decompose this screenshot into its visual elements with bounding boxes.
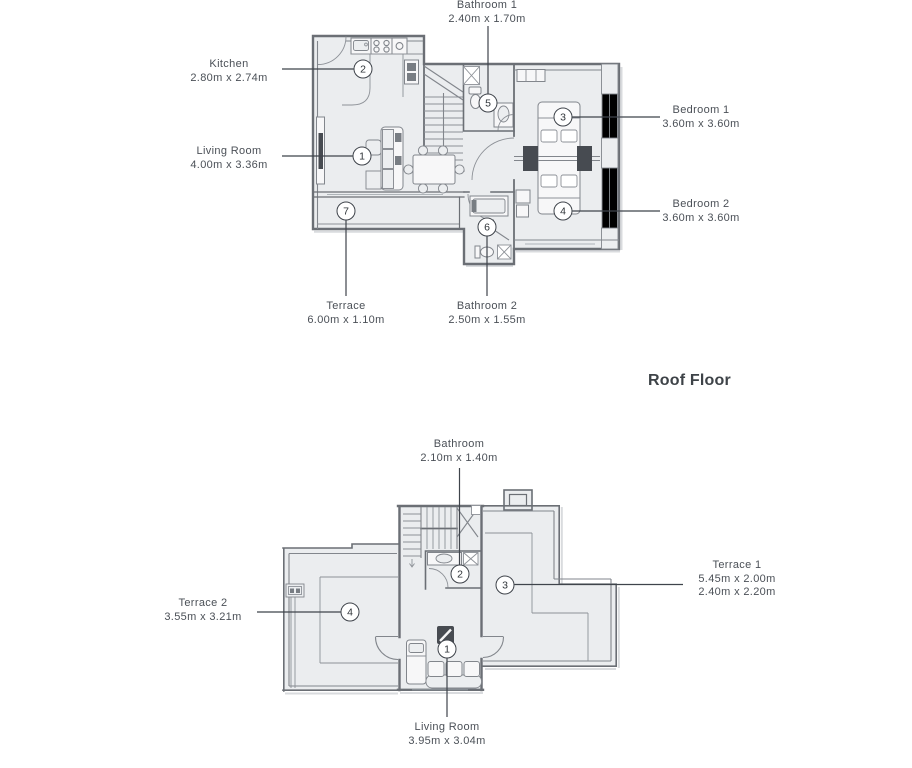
- label-terrace2-title: Terrace 2: [164, 597, 241, 611]
- label-terrace1-dims: 5.45m x 2.00m: [698, 573, 775, 587]
- sink: [436, 554, 452, 563]
- wall-poche: [523, 146, 538, 171]
- dining-chair: [418, 184, 427, 193]
- wall-poche: [577, 146, 592, 171]
- dining-chair: [404, 165, 413, 174]
- chimney: [504, 490, 532, 510]
- dining-chair: [438, 184, 447, 193]
- toilet: [469, 87, 481, 94]
- marker-roof-bathroom: 2: [451, 565, 470, 584]
- label-bedroom1-title: Bedroom 1: [662, 104, 739, 118]
- marker-bedroom1: 3: [554, 108, 573, 127]
- label-terrace-title: Terrace: [307, 300, 384, 314]
- label-kitchen-title: Kitchen: [190, 58, 267, 72]
- label-terrace2: Terrace 2 3.55m x 3.21m: [164, 597, 241, 624]
- label-bedroom2-title: Bedroom 2: [662, 198, 739, 212]
- oven: [392, 38, 407, 54]
- label-bedroom1: Bedroom 1 3.60m x 3.60m: [662, 104, 739, 131]
- sofa-cushion: [446, 662, 462, 677]
- section-title-roof-floor: Roof Floor: [648, 372, 731, 390]
- stove: [371, 38, 392, 54]
- sink: [498, 106, 509, 122]
- label-roof-bathroom-dims: 2.10m x 1.40m: [420, 452, 497, 466]
- label-living1-title: Living Room: [190, 145, 267, 159]
- label-terrace1-dims2: 2.40m x 2.20m: [698, 586, 775, 600]
- marker-kitchen: 2: [354, 60, 373, 79]
- pillow: [561, 175, 577, 187]
- dining-chair: [455, 165, 464, 174]
- label-terrace1: Terrace 1 5.45m x 2.00m 2.40m x 2.20m: [698, 559, 775, 600]
- label-terrace2-dims: 3.55m x 3.21m: [164, 611, 241, 625]
- dining-chair: [418, 146, 427, 155]
- label-bathroom1: Bathroom 1 2.40m x 1.70m: [448, 0, 525, 26]
- nightstand: [517, 205, 529, 217]
- label-terrace1-title: Terrace 1: [698, 559, 775, 573]
- marker-terrace2: 4: [341, 603, 360, 622]
- roof-plan: [257, 468, 683, 717]
- label-kitchen-dims: 2.80m x 2.74m: [190, 72, 267, 86]
- label-bathroom2-title: Bathroom 2: [448, 300, 525, 314]
- label-bedroom2: Bedroom 2 3.60m x 3.60m: [662, 198, 739, 225]
- label-roof-bathroom-title: Bathroom: [420, 438, 497, 452]
- marker-terrace: 7: [337, 202, 356, 221]
- tv: [319, 133, 324, 169]
- marker-bedroom2: 4: [554, 202, 573, 221]
- marker-terrace1: 3: [496, 576, 515, 595]
- dining-table: [413, 155, 455, 184]
- sofa-cushion: [464, 662, 480, 677]
- label-bathroom1-title: Bathroom 1: [448, 0, 525, 13]
- floorplan-page: Bathroom 1 2.40m x 1.70m Kitchen 2.80m x…: [0, 0, 912, 768]
- toilet2-tank: [475, 246, 480, 258]
- label-bedroom1-dims: 3.60m x 3.60m: [662, 118, 739, 132]
- nightstand: [516, 190, 530, 203]
- label-roof-bathroom: Bathroom 2.10m x 1.40m: [420, 438, 497, 465]
- marker-bathroom2: 6: [478, 218, 497, 237]
- label-living1: Living Room 4.00m x 3.36m: [190, 145, 267, 172]
- wardrobe: [517, 70, 545, 82]
- side-table: [366, 171, 381, 189]
- label-terrace: Terrace 6.00m x 1.10m: [307, 300, 384, 327]
- floor1-plan: [282, 26, 660, 296]
- marker-bathroom1: 5: [479, 94, 498, 113]
- label-bathroom2-dims: 2.50m x 1.55m: [448, 314, 525, 328]
- pillow: [541, 175, 557, 187]
- label-bathroom2: Bathroom 2 2.50m x 1.55m: [448, 300, 525, 327]
- floorplan-drawing: [0, 0, 912, 768]
- pillow: [561, 130, 577, 142]
- pillow: [541, 130, 557, 142]
- sofa-cushion: [428, 662, 444, 677]
- label-terrace-dims: 6.00m x 1.10m: [307, 314, 384, 328]
- label-kitchen: Kitchen 2.80m x 2.74m: [190, 58, 267, 85]
- label-roof-living-title: Living Room: [408, 721, 485, 735]
- label-living1-dims: 4.00m x 3.36m: [190, 159, 267, 173]
- marker-roof-living: 1: [438, 640, 457, 659]
- label-bathroom1-dims: 2.40m x 1.70m: [448, 13, 525, 27]
- label-bedroom2-dims: 3.60m x 3.60m: [662, 212, 739, 226]
- label-roof-living: Living Room 3.95m x 3.04m: [408, 721, 485, 748]
- label-roof-living-dims: 3.95m x 3.04m: [408, 735, 485, 749]
- marker-living1: 1: [353, 147, 372, 166]
- dining-chair: [438, 146, 447, 155]
